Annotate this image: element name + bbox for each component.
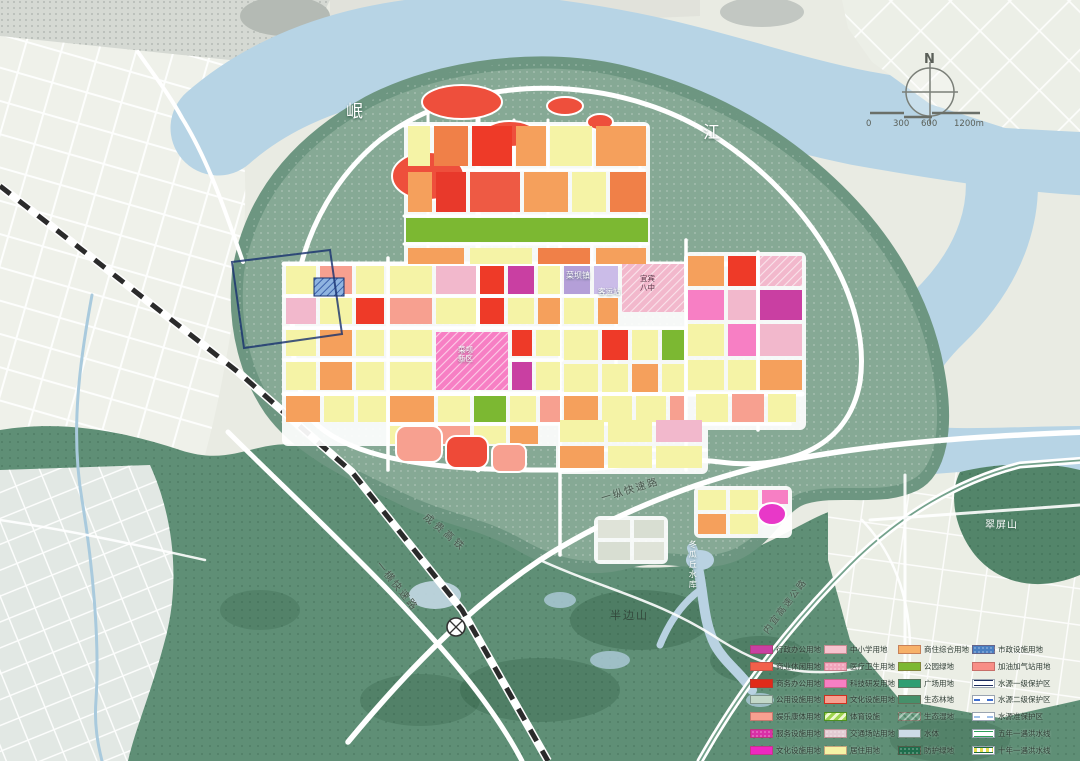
legend-item: 科技研发用地 (824, 677, 895, 690)
legend-label: 公用设施用地 (776, 694, 821, 705)
legend-swatch (898, 645, 921, 654)
legend-item: 十年一遇洪水线 (972, 744, 1051, 757)
legend-swatch (972, 712, 995, 721)
legend-swatch (824, 712, 847, 721)
legend-swatch (972, 679, 995, 688)
legend-label: 体育设施 (850, 711, 880, 722)
legend-item: 交通场站用地 (824, 727, 895, 740)
legend-label: 水源二级保护区 (998, 694, 1051, 705)
north-label: N (924, 52, 935, 67)
legend-swatch (750, 695, 773, 704)
legend-item: 体育设施 (824, 710, 895, 723)
legend-label: 公园绿地 (924, 661, 954, 672)
legend-item: 广场用地 (898, 677, 969, 690)
legend-item: 商业休闲用地 (750, 660, 821, 673)
legend-swatch (750, 746, 773, 755)
legend-label: 商住综合用地 (924, 644, 969, 655)
legend-swatch (824, 662, 847, 671)
legend-item: 防护绿地 (898, 744, 969, 757)
legend-label: 水体 (924, 728, 939, 739)
legend-item: 行政办公用地 (750, 643, 821, 656)
legend-label: 防护绿地 (924, 745, 954, 756)
legend-label: 五年一遇洪水线 (998, 728, 1051, 739)
legend-swatch (972, 729, 995, 738)
legend-swatch (750, 729, 773, 738)
legend-swatch (750, 679, 773, 688)
legend-swatch (824, 746, 847, 755)
legend-label: 市政设施用地 (998, 644, 1043, 655)
legend-label: 科技研发用地 (850, 678, 895, 689)
legend-swatch (972, 695, 995, 704)
legend-label: 中小学用地 (850, 644, 888, 655)
scale-tick-300: 300 (893, 119, 909, 129)
legend-column: 行政办公用地商业休闲用地商务办公用地公用设施用地娱乐康体用地服务设施用地文化设施… (750, 641, 821, 759)
legend-label: 居住用地 (850, 745, 880, 756)
legend-item: 五年一遇洪水线 (972, 727, 1051, 740)
legend-swatch (824, 679, 847, 688)
legend-label: 广场用地 (924, 678, 954, 689)
legend-column: 商住综合用地公园绿地广场用地生态林地生态湿地水体防护绿地 (898, 641, 969, 759)
legend-swatch (898, 679, 921, 688)
legend-item: 生态林地 (898, 693, 969, 706)
legend-item: 水源准保护区 (972, 710, 1051, 723)
legend-label: 商业休闲用地 (776, 661, 821, 672)
legend-swatch (898, 662, 921, 671)
scale-tick-0: 0 (866, 119, 871, 129)
legend-item: 公园绿地 (898, 660, 969, 673)
legend-item: 加油加气站用地 (972, 660, 1051, 673)
legend-label: 行政办公用地 (776, 644, 821, 655)
legend-label: 生态林地 (924, 694, 954, 705)
legend-swatch (750, 712, 773, 721)
legend-swatch (898, 712, 921, 721)
legend-label: 水源准保护区 (998, 711, 1043, 722)
legend-label: 加油加气站用地 (998, 661, 1051, 672)
legend-item: 娱乐康体用地 (750, 710, 821, 723)
legend-swatch (824, 729, 847, 738)
legend-swatch (898, 746, 921, 755)
legend-item: 商住综合用地 (898, 643, 969, 656)
scale-tick-1200: 1200m (954, 119, 984, 129)
legend-label: 交通场站用地 (850, 728, 895, 739)
legend-label: 文化设施用地 (776, 745, 821, 756)
legend-item: 文化设施用地 (824, 693, 895, 706)
legend-swatch (898, 695, 921, 704)
legend-swatch (750, 645, 773, 654)
legend-item: 医疗卫生用地 (824, 660, 895, 673)
legend-label: 十年一遇洪水线 (998, 745, 1051, 756)
legend-item: 水体 (898, 727, 969, 740)
legend-item: 市政设施用地 (972, 643, 1051, 656)
legend-label: 商务办公用地 (776, 678, 821, 689)
legend-item: 水源二级保护区 (972, 693, 1051, 706)
legend-swatch (824, 645, 847, 654)
legend-column: 中小学用地医疗卫生用地科技研发用地文化设施用地体育设施交通场站用地居住用地 (824, 641, 895, 759)
legend-item: 中小学用地 (824, 643, 895, 656)
legend-item: 公用设施用地 (750, 693, 821, 706)
legend-label: 文化设施用地 (850, 694, 895, 705)
legend-swatch (824, 695, 847, 704)
legend-column: 市政设施用地加油加气站用地水源一级保护区水源二级保护区水源准保护区五年一遇洪水线… (972, 641, 1051, 759)
legend-swatch (972, 746, 995, 755)
legend-item: 居住用地 (824, 744, 895, 757)
legend: 行政办公用地商业休闲用地商务办公用地公用设施用地娱乐康体用地服务设施用地文化设施… (750, 641, 1078, 759)
legend-label: 生态湿地 (924, 711, 954, 722)
legend-item: 生态湿地 (898, 710, 969, 723)
legend-label: 水源一级保护区 (998, 678, 1051, 689)
legend-swatch (972, 662, 995, 671)
legend-item: 文化设施用地 (750, 744, 821, 757)
legend-label: 服务设施用地 (776, 728, 821, 739)
legend-item: 水源一级保护区 (972, 677, 1051, 690)
legend-swatch (750, 662, 773, 671)
legend-item: 商务办公用地 (750, 677, 821, 690)
planning-map: 岷 江 菜坝镇 客运站 宜宾八中 菜坝新区 一纵快速路 一横快速路 成贵高铁 内… (0, 0, 1080, 761)
legend-label: 医疗卫生用地 (850, 661, 895, 672)
legend-swatch (898, 729, 921, 738)
legend-swatch (972, 645, 995, 654)
legend-label: 娱乐康体用地 (776, 711, 821, 722)
scale-tick-600: 600 (921, 119, 937, 129)
legend-item: 服务设施用地 (750, 727, 821, 740)
